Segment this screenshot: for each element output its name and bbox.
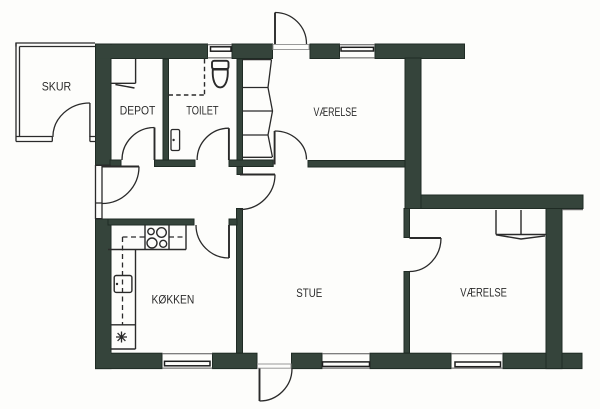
svg-text:VÆRELSE: VÆRELSE: [460, 285, 507, 299]
svg-text:STUE: STUE: [296, 286, 322, 300]
svg-text:VÆRELSE: VÆRELSE: [314, 105, 358, 119]
svg-text:TOILET: TOILET: [186, 104, 219, 118]
svg-text:DEPOT: DEPOT: [120, 104, 156, 118]
svg-text:SKUR: SKUR: [42, 80, 72, 94]
svg-text:KØKKEN: KØKKEN: [152, 293, 195, 307]
